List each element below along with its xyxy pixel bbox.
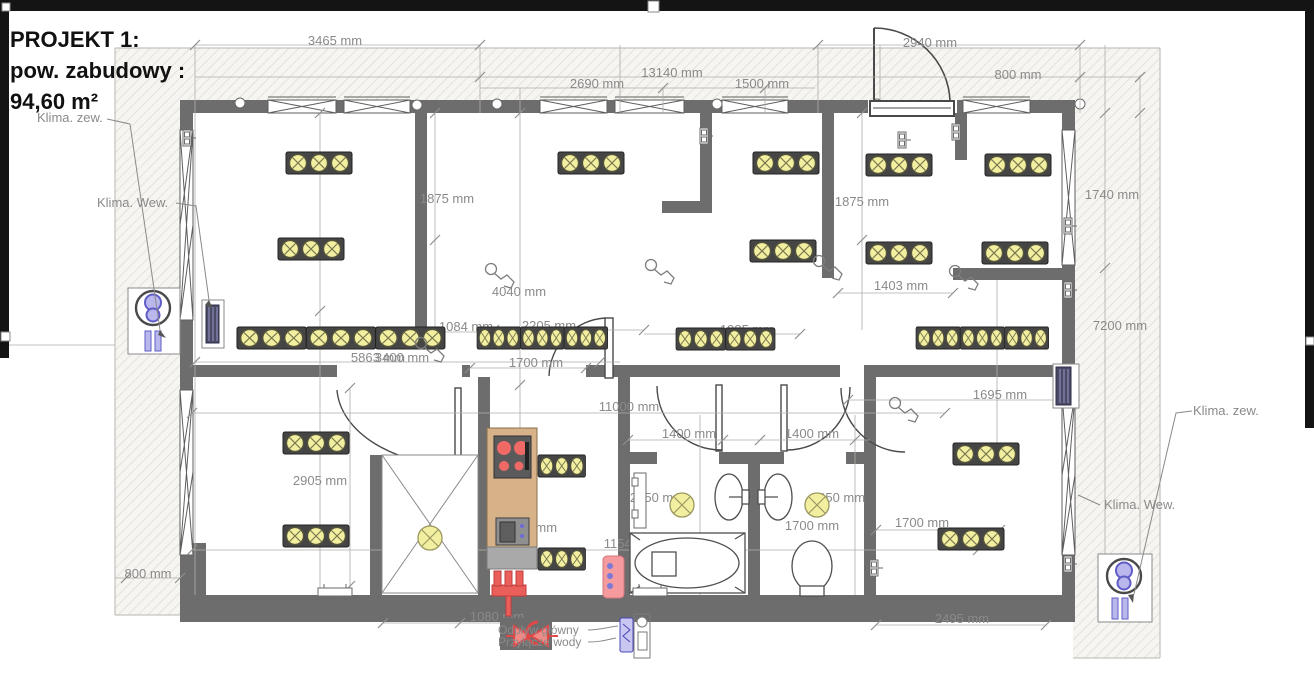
- selection-handle[interactable]: [1, 332, 10, 341]
- label-klima-zew-right: Klima. zew.: [1193, 403, 1259, 418]
- label-klima-wew-right: Klima. Wew.: [1104, 497, 1175, 512]
- label-klima-wew-left: Klima. Wew.: [97, 195, 168, 210]
- project-subtitle: pow. zabudowy :: [10, 55, 185, 86]
- selection-handle[interactable]: [1306, 337, 1314, 345]
- project-title: PROJEKT 1:: [10, 24, 140, 55]
- selection-handle[interactable]: [2, 3, 10, 11]
- label-water-supply: Przyłącze wody: [498, 636, 581, 648]
- selection-handle[interactable]: [648, 1, 659, 12]
- canvas-border-right: [1305, 0, 1314, 428]
- canvas-border-left: [0, 0, 9, 358]
- floor-plan-canvas: 3465 mm2940 mm13140 mm800 mm2690 mm1500 …: [0, 0, 1314, 675]
- canvas-frame: [0, 0, 1314, 675]
- label-klima-zew-left: Klima. zew.: [37, 110, 103, 125]
